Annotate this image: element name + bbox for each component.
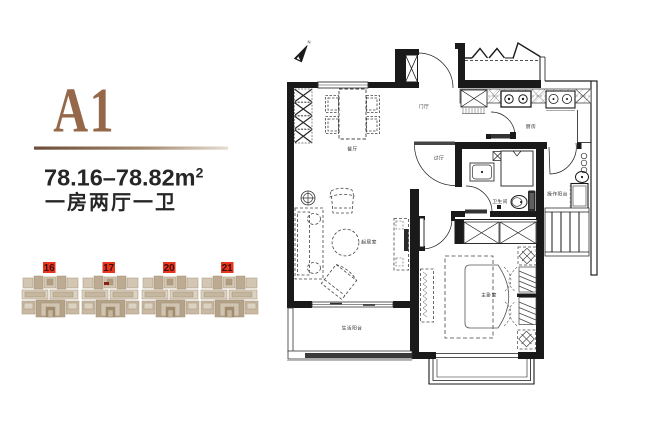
svg-text:20: 20 — [164, 263, 176, 274]
svg-text:卫生间: 卫生间 — [492, 198, 508, 205]
svg-text:17: 17 — [103, 263, 115, 274]
svg-text:21: 21 — [222, 263, 234, 274]
svg-text:生活阳台: 生活阳台 — [342, 325, 363, 332]
svg-text:N: N — [308, 40, 311, 45]
svg-text:餐厅: 餐厅 — [347, 146, 357, 153]
svg-text:操作阳台: 操作阳台 — [547, 191, 568, 198]
svg-text:78.16–78.82m2: 78.16–78.82m2 — [44, 165, 204, 191]
svg-text:16: 16 — [44, 263, 56, 274]
svg-text:过厅: 过厅 — [434, 155, 444, 162]
svg-text:起居室: 起居室 — [361, 239, 377, 246]
svg-text:A1: A1 — [53, 76, 115, 146]
svg-text:主卧室: 主卧室 — [481, 292, 497, 299]
svg-text:一房两厅一卫: 一房两厅一卫 — [45, 190, 177, 214]
svg-text:门厅: 门厅 — [419, 103, 429, 110]
svg-text:厨房: 厨房 — [526, 123, 536, 130]
